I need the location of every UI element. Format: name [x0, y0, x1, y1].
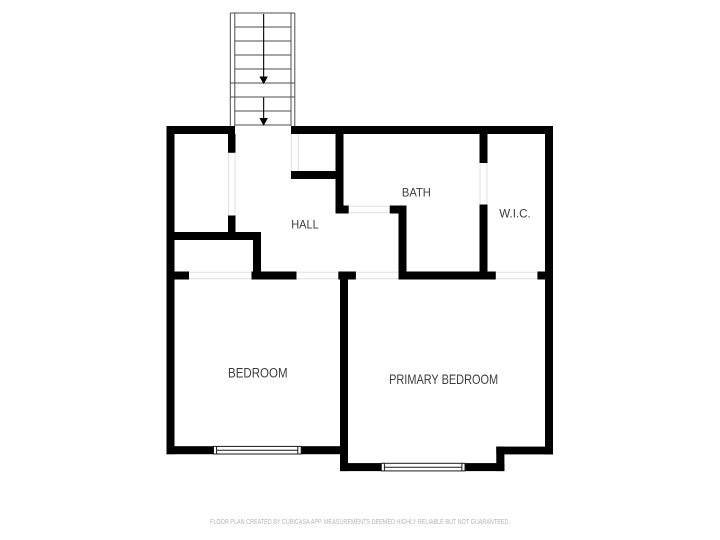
- svg-text:W.I.C.: W.I.C.: [499, 207, 531, 221]
- svg-text:FLOOR PLAN CREATED BY CUBICASA: FLOOR PLAN CREATED BY CUBICASA APP. MEAS…: [210, 517, 510, 526]
- svg-text:BATH: BATH: [402, 185, 431, 199]
- svg-text:BEDROOM: BEDROOM: [228, 365, 288, 380]
- svg-text:PRIMARY BEDROOM: PRIMARY BEDROOM: [389, 371, 498, 387]
- svg-text:HALL: HALL: [291, 217, 319, 231]
